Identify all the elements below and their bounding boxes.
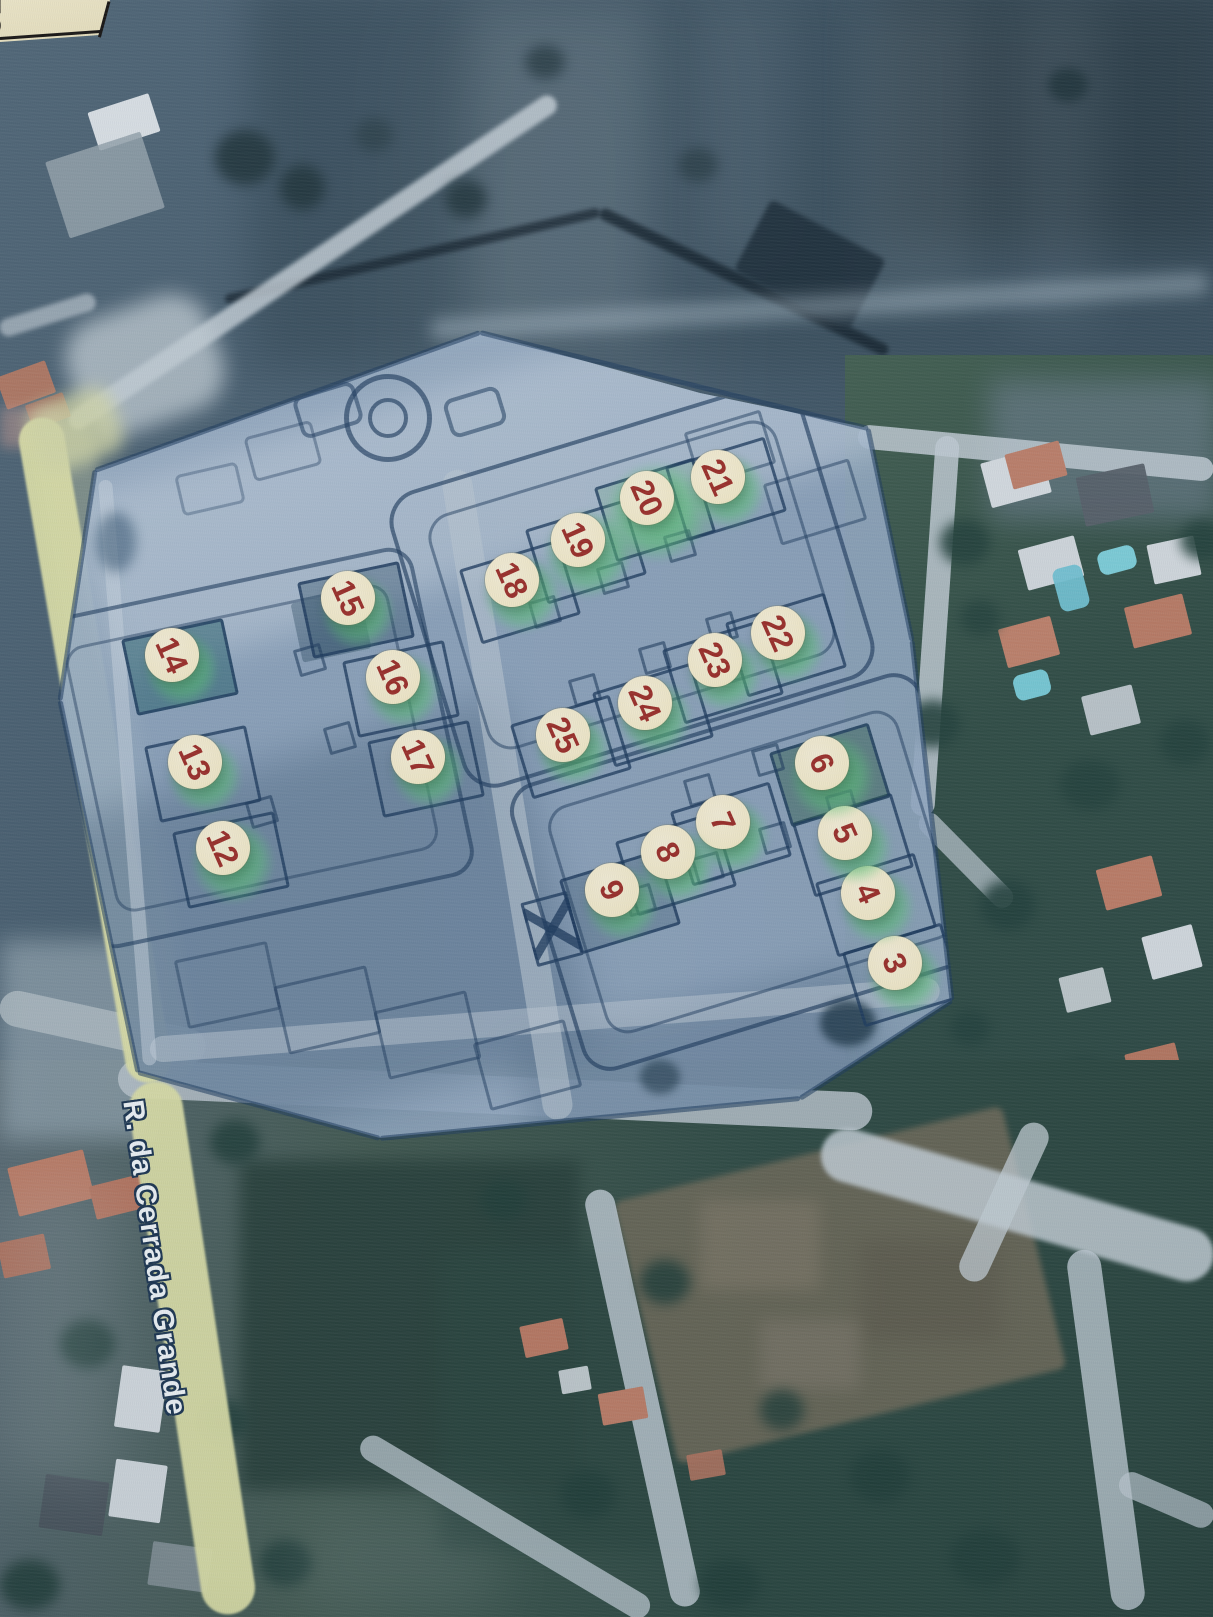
page-corner-text: TO [0, 0, 6, 38]
printed-aerial-map-photo: R. da Cerrada Grande 3456789121314151617… [0, 0, 1213, 1617]
lot-markers-layer: 34567891213141516171819202122232425 [0, 0, 1213, 1617]
